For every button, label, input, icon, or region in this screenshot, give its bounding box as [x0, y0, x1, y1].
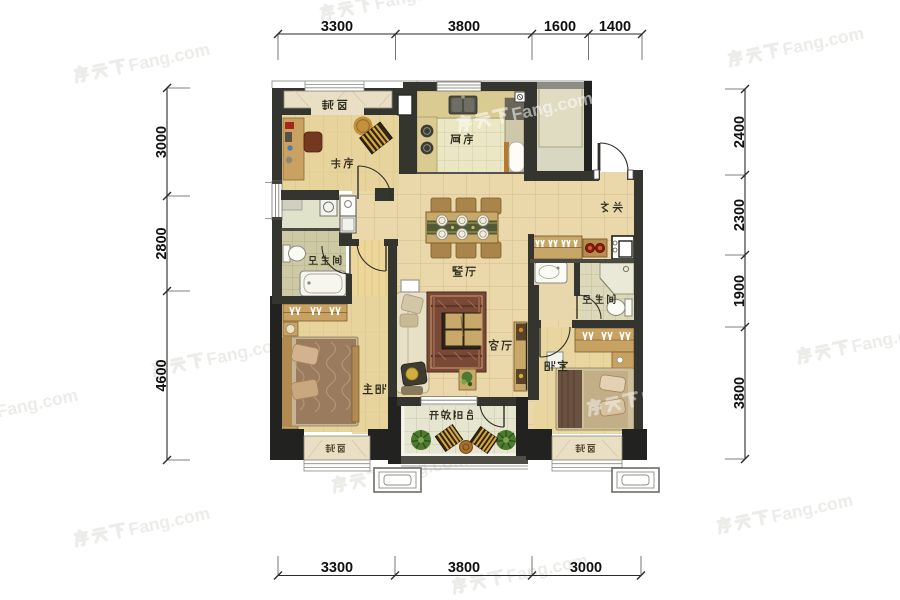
- svg-text:2300: 2300: [732, 199, 748, 231]
- svg-text:3000: 3000: [570, 560, 602, 576]
- svg-text:3000: 3000: [154, 126, 170, 158]
- svg-text:1900: 1900: [732, 275, 748, 307]
- svg-text:2400: 2400: [732, 116, 748, 148]
- svg-text:3800: 3800: [448, 19, 480, 35]
- svg-text:3300: 3300: [321, 19, 353, 35]
- svg-text:3300: 3300: [321, 560, 353, 576]
- svg-text:3800: 3800: [448, 560, 480, 576]
- svg-text:3800: 3800: [732, 377, 748, 409]
- svg-text:4600: 4600: [154, 359, 170, 391]
- svg-text:2800: 2800: [154, 227, 170, 259]
- svg-text:1600: 1600: [544, 19, 576, 35]
- svg-text:1400: 1400: [599, 19, 631, 35]
